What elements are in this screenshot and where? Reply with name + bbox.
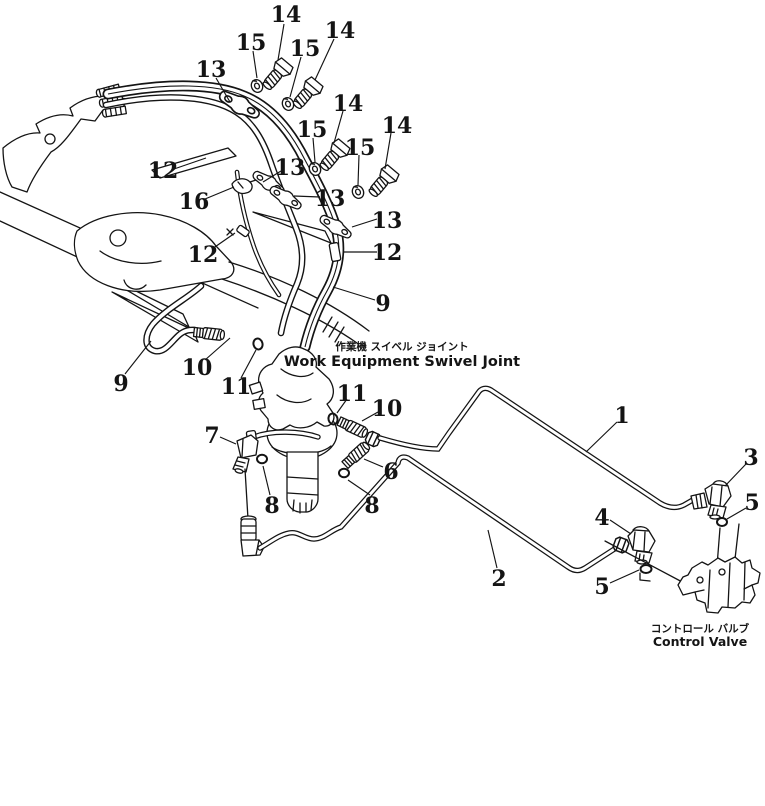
part-number-7: 7 (204, 423, 219, 449)
leader-line (727, 508, 746, 519)
swivel-caption-en: Work Equipment Swivel Joint (284, 354, 520, 370)
part-number-15: 15 (236, 30, 267, 56)
part-number-9: 9 (113, 371, 128, 397)
part-number-15: 15 (345, 135, 376, 161)
washer-15 (350, 184, 365, 200)
part-number-10: 10 (182, 355, 213, 381)
piping-diagram: 作業機 スイベル ジョイント Work Equipment Swivel Joi… (0, 0, 765, 806)
part-number-8: 8 (364, 493, 379, 519)
part-number-16: 16 (179, 189, 210, 215)
pipe-1 (380, 388, 698, 507)
bolt-14 (365, 164, 401, 201)
leader-line (278, 24, 284, 60)
washer-15 (280, 96, 295, 112)
o-ring-11 (252, 338, 264, 351)
elbow-3 (705, 484, 731, 507)
leader-line (586, 422, 617, 452)
o-ring-8 (339, 469, 349, 477)
o-ring-5 (641, 565, 652, 573)
swivel-caption-jp: 作業機 スイベル ジョイント (335, 340, 468, 353)
part-number-4: 4 (594, 505, 609, 531)
part-number-11: 11 (337, 381, 368, 407)
control-valve (678, 557, 760, 613)
elbow-4-assembly (605, 527, 686, 584)
leader-line (220, 437, 236, 444)
part-number-5: 5 (744, 490, 759, 516)
part-number-12: 12 (372, 240, 403, 266)
parts-diagram-page: 作業機 スイベル ジョイント Work Equipment Swivel Joi… (0, 0, 765, 806)
elbow-4 (628, 530, 655, 552)
part-number-10: 10 (372, 396, 403, 422)
part-number-14: 14 (382, 113, 413, 139)
part-number-15: 15 (290, 36, 321, 62)
part-number-12: 12 (148, 158, 179, 184)
o-ring-8 (257, 455, 267, 463)
leader-line (290, 57, 301, 97)
part-number-1: 1 (614, 403, 629, 429)
part-number-13: 13 (196, 57, 227, 83)
elbow-3-assembly (691, 481, 739, 566)
part-number-5: 5 (594, 574, 609, 600)
part-number-11: 11 (221, 374, 252, 400)
part-number-8: 8 (264, 493, 279, 519)
leader-line (125, 341, 151, 374)
part-number-13: 13 (275, 155, 306, 181)
washer-15 (249, 78, 264, 94)
part-number-14: 14 (271, 2, 302, 28)
part-number-12: 12 (188, 242, 219, 268)
o-ring-5 (717, 518, 727, 526)
part-number-2: 2 (491, 566, 506, 592)
part-number-13: 13 (372, 208, 403, 234)
part-number-3: 3 (743, 445, 758, 471)
bolt-14 (259, 57, 295, 94)
leader-line (364, 459, 383, 467)
valve-caption-en: Control Valve (653, 634, 747, 649)
part-number-6: 6 (383, 459, 398, 485)
leader-line (610, 570, 639, 583)
fitting-6 (341, 441, 371, 470)
part-number-9: 9 (375, 291, 390, 317)
leader-line (205, 187, 234, 199)
part-number-14: 14 (333, 91, 364, 117)
fitting-10 (193, 327, 224, 341)
part-number-13: 13 (315, 186, 346, 212)
elbow-7 (237, 435, 258, 458)
leader-line (488, 530, 497, 568)
leader-line (333, 287, 375, 300)
fitting-6-assembly (339, 441, 371, 478)
leader-line (610, 520, 631, 534)
part-number-14: 14 (325, 18, 356, 44)
part-number-15: 15 (297, 117, 328, 143)
leader-line (263, 466, 270, 495)
